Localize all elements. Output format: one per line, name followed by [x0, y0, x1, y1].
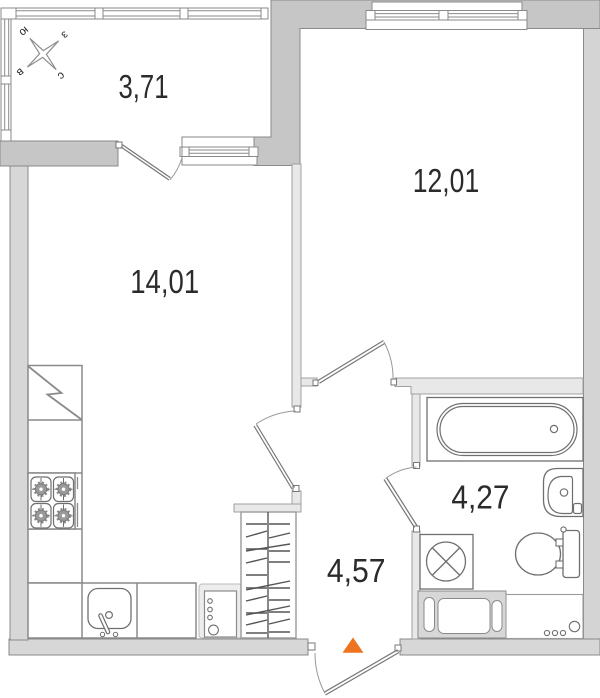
- svg-text:4,57: 4,57: [327, 552, 386, 589]
- svg-text:12,01: 12,01: [413, 162, 480, 199]
- svg-text:3,71: 3,71: [119, 68, 169, 105]
- svg-text:14,01: 14,01: [130, 263, 199, 300]
- svg-text:4,27: 4,27: [451, 479, 509, 516]
